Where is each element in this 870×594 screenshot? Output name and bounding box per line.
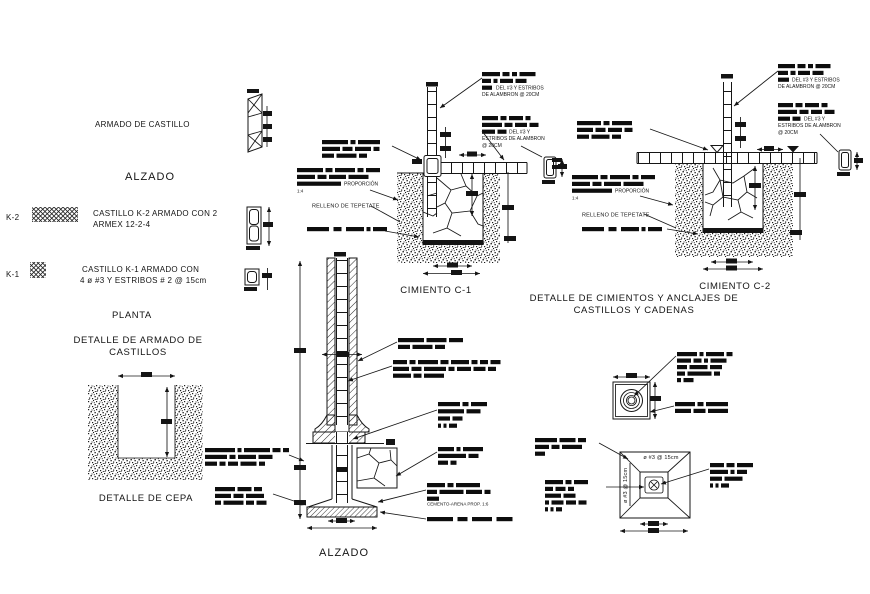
cimiento-c1-detail: CIMIENTO C-1 (397, 82, 567, 296)
zapata-plan-detail: ø #3 @ 15cm ø #3 @ 15cm (620, 452, 690, 533)
cepa-detail: DETALLE DE CEPA (88, 372, 203, 504)
redacted-annotation (677, 352, 733, 382)
k2-desc-line1: CASTILLO K-2 ARMADO CON 2 (93, 209, 218, 218)
c2-proporcion-label: PROPORCIÓN (615, 188, 650, 195)
redacted-annotation (545, 480, 588, 511)
k1-desc-line2: 4 ø #3 Y ESTRIBOS # 2 @ 15cm (80, 276, 207, 285)
redacted-annotation: DEL #3 Y ESTRIBOS DE ALAMBRON @ 20CM (778, 64, 840, 90)
detalle-armado-line2: CASTILLOS (109, 347, 167, 358)
zapata-rebar-left-label: ø #3 @ 15cm (623, 467, 629, 503)
alzado-column-detail: ALZADO (294, 252, 397, 559)
k1-desc-line1: CASTILLO K-1 ARMADO CON (82, 265, 199, 274)
redacted-annotation: PROPORCIÓN 1:4 (297, 168, 380, 193)
redacted-annotation (427, 517, 513, 521)
cimiento-c2-caption: CIMIENTO C-2 (699, 281, 770, 292)
redacted-annotation (205, 448, 289, 466)
redacted-annotation: CEMENTO-ARENA PROP. 1:6 (427, 483, 491, 507)
c2-ratio-label: 1:4 (572, 195, 579, 200)
c1-relleno-label: RELLENO DE TEPETATE (312, 204, 380, 210)
c2-ann2-line1: DEL #3 Y (804, 117, 826, 123)
redacted-annotation (215, 487, 267, 505)
k2-section-icon (246, 207, 273, 250)
c1-proporcion-label: PROPORCIÓN (344, 181, 379, 188)
c2-relleno-label: RELLENO DE TEPETATE (582, 213, 650, 219)
redacted-annotation (398, 338, 463, 349)
cimientos-title-line1: DETALLE DE CIMIENTOS Y ANCLAJES DE (530, 293, 739, 304)
c2-ann1-line1: DEL #3 Y ESTRIBOS (792, 78, 840, 84)
castillo-elevation-icon (247, 89, 272, 152)
alzado-caption: ALZADO (319, 547, 369, 559)
redacted-annotation: DEL #3 Y ESTRIBOS DE ALAMBRON @ 20CM (482, 72, 544, 98)
c2-ann2-line2: ESTRIBOS DE ALAMBRON (778, 123, 841, 129)
redacted-annotation (535, 438, 586, 456)
redacted-annotation (675, 402, 728, 413)
cimientos-title-line2: CASTILLOS Y CADENAS (574, 305, 695, 316)
dado-plan-detail (613, 373, 661, 419)
legend-alzado-label: ALZADO (125, 171, 175, 183)
c1-ann1-line1: DEL #3 Y ESTRIBOS (496, 86, 544, 92)
k2-desc-line2: ARMEX 12-2-4 (93, 220, 151, 229)
zapata-rebar-top-label: ø #3 @ 15cm (643, 455, 679, 461)
redacted-annotation (582, 227, 662, 231)
cemento-arena-label: CEMENTO-ARENA PROP. 1:6 (427, 502, 489, 507)
k1-section-icon (244, 268, 272, 291)
k1-hatch-swatch (30, 262, 46, 278)
c1-ratio-label: 1:4 (297, 188, 304, 193)
cepa-caption: DETALLE DE CEPA (99, 493, 193, 504)
planta-label: PLANTA (112, 310, 152, 321)
c2-ann2-line3: @ 20CM (778, 130, 798, 136)
redacted-annotation (307, 227, 387, 231)
redacted-annotation: DEL #3 Y ESTRIBOS DE ALAMBRON @ 20CM (778, 103, 841, 136)
redacted-annotation (438, 402, 487, 428)
cadena-section-icon (837, 150, 863, 176)
cimiento-c1-caption: CIMIENTO C-1 (400, 285, 471, 296)
redacted-annotation (710, 463, 753, 488)
c2-ann1-line2: DE ALAMBRON @ 20CM (778, 84, 835, 90)
c1-ann1-line2: DE ALAMBRON @ 20CM (482, 92, 539, 98)
k2-hatch-swatch (32, 207, 78, 222)
redacted-annotation (393, 360, 501, 378)
c1-ann2-line1: DEL #3 Y (509, 130, 531, 136)
k1-tag: K-1 (6, 270, 20, 279)
k2-tag: K-2 (6, 213, 20, 222)
detalle-armado-line1: DETALLE DE ARMADO DE (73, 335, 202, 346)
redacted-annotation (322, 140, 380, 158)
redacted-annotation (438, 447, 483, 465)
redacted-annotation (577, 121, 633, 139)
drawing-canvas: ARMADO DE CASTILLO ALZADO K-2 CASTILLO K… (0, 0, 870, 594)
legend-title: ARMADO DE CASTILLO (95, 120, 190, 129)
legend: ARMADO DE CASTILLO ALZADO K-2 CASTILLO K… (6, 89, 273, 358)
c1-ann2-line2: ESTRIBOS DE ALAMBRON (482, 136, 545, 142)
